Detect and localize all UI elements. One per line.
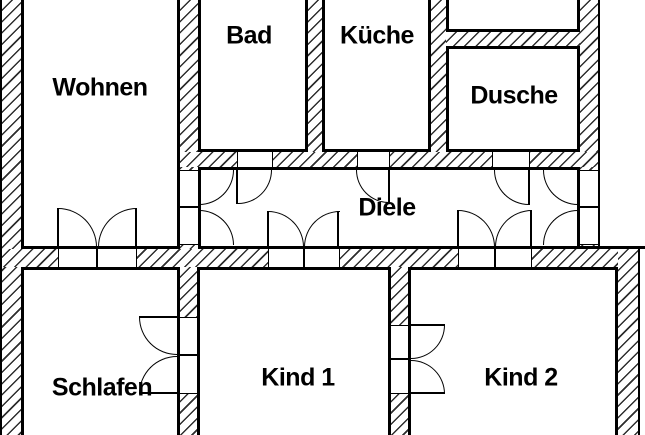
room-kind1 [197,267,391,435]
room-label-dusche: Dusche [470,82,557,111]
outer-line-right-bottom [638,249,640,435]
door-opening-bad [237,152,273,167]
wall-kueche-dusche [431,0,446,152]
wall-bad-kueche [308,0,322,152]
door-opening-dusche [492,152,530,167]
room-label-bad: Bad [226,22,272,51]
door-divider-kind2 [494,249,496,267]
room-label-kind2: Kind 2 [484,364,557,393]
room-kind2 [408,267,618,435]
room-label-schlafen: Schlafen [52,374,152,403]
room-label-kueche: Küche [340,22,414,51]
door-divider-schlafen [180,354,197,356]
room-above-dusche [446,0,580,32]
outer-line-left [0,0,2,435]
floor-plan: Wohnen Bad Küche Dusche Diele Schlafen K… [0,0,645,435]
door-divider-wohnen-schlafen [96,249,98,267]
wall-above-dusche [446,32,580,46]
door-divider-kind1-kind2 [391,358,408,360]
room-label-wohnen: Wohnen [52,74,147,103]
door-divider-kind1 [303,249,305,267]
room-wohnen [21,0,180,249]
door-divider-entrance [580,206,598,208]
wall-outer-right-bottom [618,249,638,435]
room-schlafen [21,267,180,435]
room-label-diele: Diele [358,194,415,223]
door-divider-wohnen-diele [180,206,198,208]
outer-line-right-top [598,0,600,249]
wall-outer-left [2,0,22,435]
room-label-kind1: Kind 1 [261,364,334,393]
step-wall-top-line [577,246,645,249]
door-opening-kueche [357,152,390,167]
